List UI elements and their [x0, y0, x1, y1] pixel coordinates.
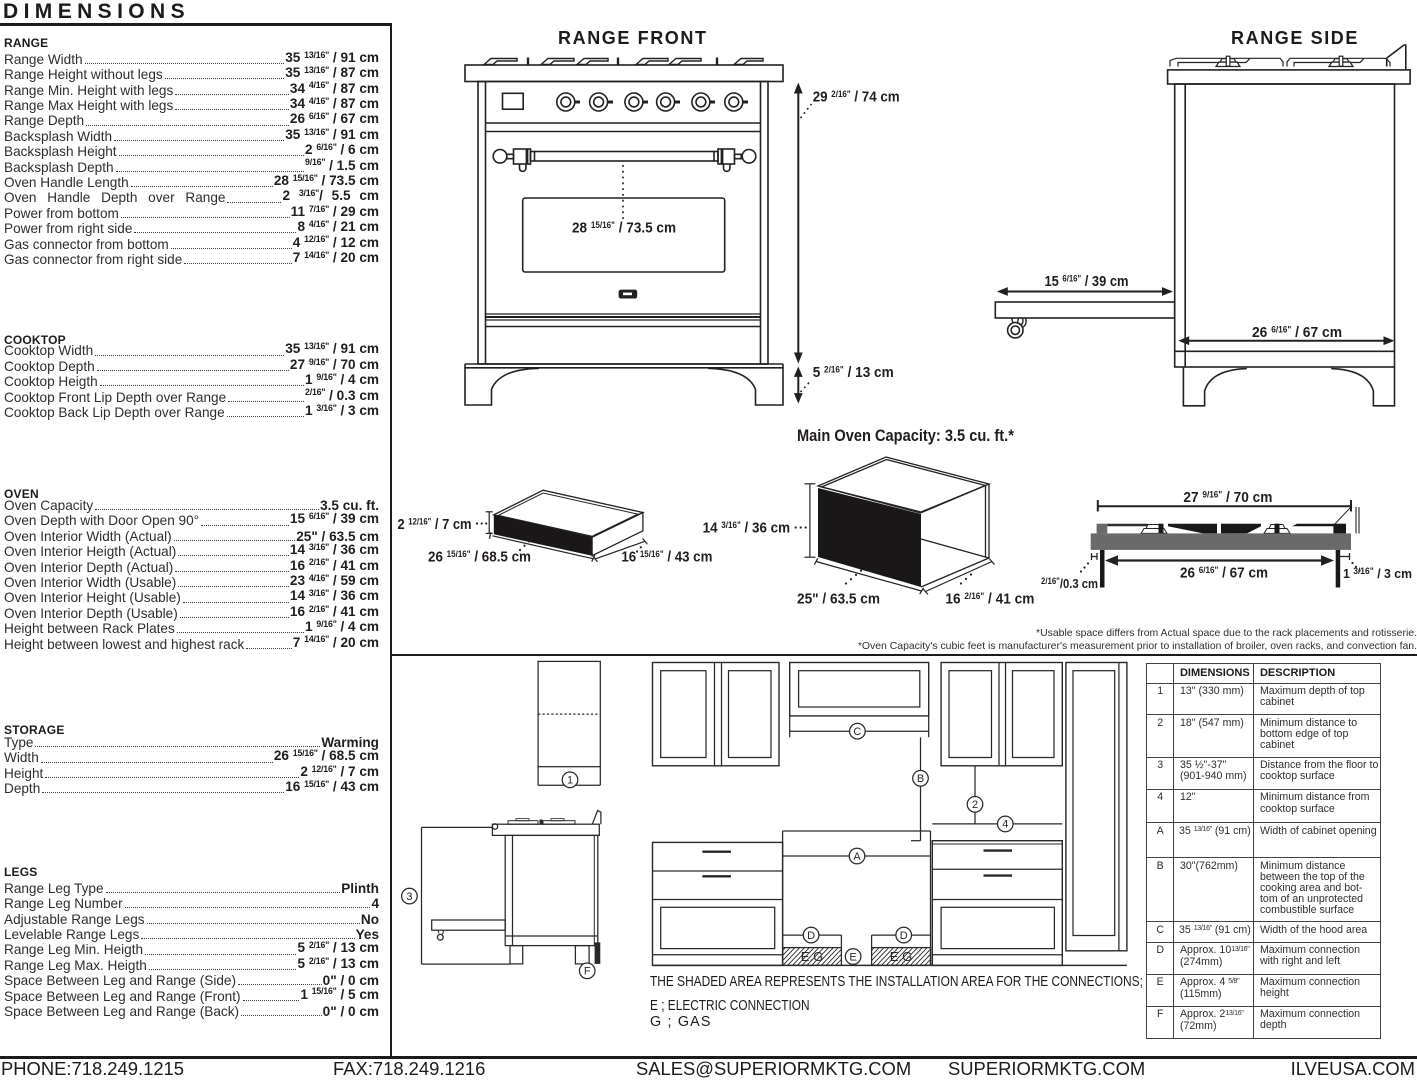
- svg-text:4: 4: [1002, 819, 1008, 831]
- svg-text:E.G: E.G: [801, 949, 823, 964]
- svg-text:E: E: [849, 951, 856, 963]
- svg-text:D: D: [900, 930, 908, 942]
- svg-text:F: F: [584, 966, 591, 978]
- svg-text:26 15/16" / 68.5 cm: 26 15/16" / 68.5 cm: [428, 549, 531, 566]
- svg-text:A: A: [853, 851, 861, 863]
- svg-text:14 3/16" / 36 cm: 14 3/16" / 36 cm: [703, 520, 791, 537]
- svg-text:3: 3: [406, 891, 412, 903]
- svg-text:16 2/16" / 41 cm: 16 2/16" / 41 cm: [945, 591, 1034, 608]
- svg-text:28 15/16" / 73.5 cm: 28 15/16" / 73.5 cm: [572, 220, 676, 237]
- svg-text:26 6/16" / 67 cm: 26 6/16" / 67 cm: [1252, 324, 1342, 341]
- svg-text:E.G: E.G: [890, 949, 912, 964]
- svg-text:16 15/16" / 43 cm: 16 15/16" / 43 cm: [621, 549, 712, 566]
- svg-text:29 2/16" / 74 cm: 29 2/16" / 74 cm: [813, 89, 900, 106]
- svg-text:D: D: [807, 930, 815, 942]
- svg-text:2: 2: [972, 799, 978, 811]
- svg-text:B: B: [917, 773, 924, 785]
- svg-text:25" / 63.5 cm: 25" / 63.5 cm: [797, 591, 880, 608]
- svg-text:26 6/16" / 67 cm: 26 6/16" / 67 cm: [1180, 565, 1268, 582]
- svg-text:1 3/16" / 3 cm: 1 3/16" / 3 cm: [1343, 566, 1412, 581]
- svg-text:1: 1: [567, 775, 573, 787]
- svg-text:27 9/16" / 70 cm: 27 9/16" / 70 cm: [1183, 489, 1272, 506]
- svg-text:2/16"/0.3 cm: 2/16"/0.3 cm: [1041, 576, 1098, 591]
- svg-text:2 12/16" / 7 cm: 2 12/16" / 7 cm: [398, 516, 472, 533]
- svg-text:5 2/16" / 13 cm: 5 2/16" / 13 cm: [813, 364, 894, 381]
- svg-text:C: C: [853, 726, 861, 738]
- svg-text:15 6/16" / 39 cm: 15 6/16" / 39 cm: [1045, 273, 1129, 290]
